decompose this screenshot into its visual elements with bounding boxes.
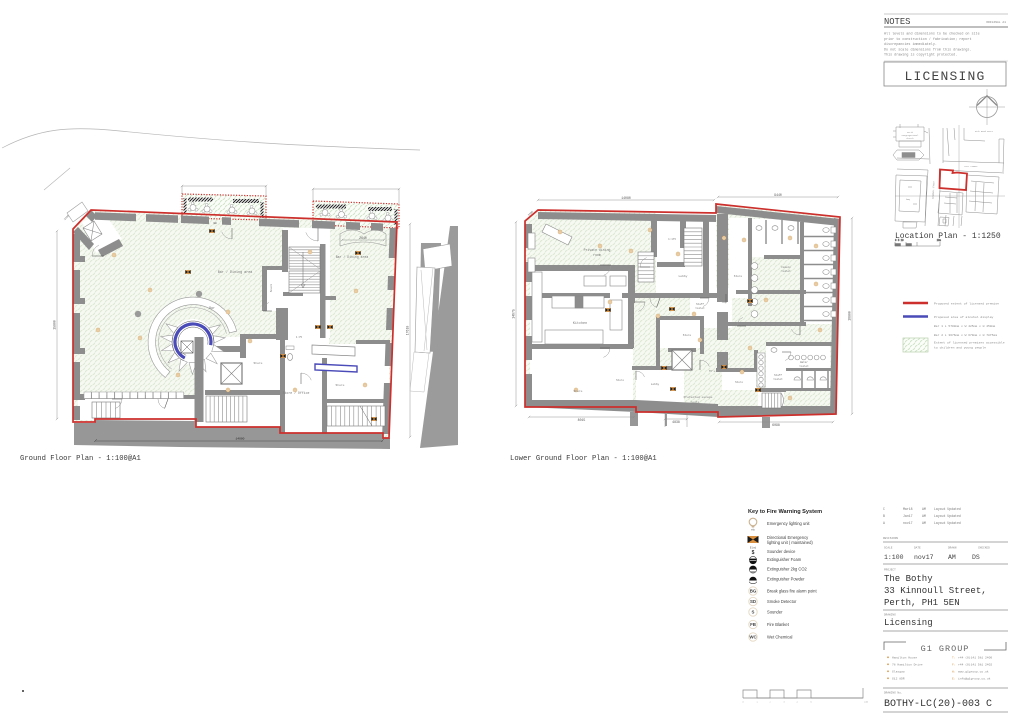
svg-text:nov17: nov17 (903, 521, 913, 525)
svg-text:20m: 20m (937, 239, 942, 242)
svg-text:E:: E: (952, 678, 956, 681)
svg-text:Emergency lighting unit: Emergency lighting unit (767, 521, 810, 526)
svg-text:SD: SD (750, 599, 756, 604)
svg-text:AM: AM (922, 521, 926, 525)
svg-text:Bar 1 L 5700mm x W 425mm x H 4: Bar 1 L 5700mm x W 425mm x H 450mm (934, 325, 995, 328)
svg-text:lighting unit ( maintained): lighting unit ( maintained) (767, 540, 813, 545)
svg-text:B: B (883, 514, 885, 518)
svg-text:Lower Ground Floor Plan - 1:10: Lower Ground Floor Plan - 1:100@A1 (510, 455, 657, 463)
svg-text:route: route (690, 401, 699, 404)
svg-text:6098: 6098 (772, 423, 780, 427)
svg-text:E (m): E (m) (750, 546, 756, 550)
svg-text:Store: Store (573, 390, 582, 393)
svg-text:4838: 4838 (672, 420, 680, 424)
svg-text:WC: WC (749, 635, 757, 640)
svg-text:nov17: nov17 (914, 554, 934, 561)
svg-text:All levels and dimensions to b: All levels and dimensions to be checked … (884, 32, 980, 37)
svg-text:9440: 9440 (774, 193, 782, 197)
svg-text:1:75: 1:75 (296, 336, 303, 339)
svg-text:Store: Store (683, 334, 692, 337)
svg-text:Layout Updated: Layout Updated (934, 514, 961, 518)
svg-text:toilet: toilet (695, 306, 705, 310)
svg-text:Jan17: Jan17 (903, 514, 913, 518)
svg-text:Female: Female (781, 265, 791, 269)
svg-text:10m: 10m (864, 701, 869, 704)
svg-text:G12 8DR: G12 8DR (892, 678, 905, 681)
svg-text:Mar18: Mar18 (903, 507, 913, 511)
svg-text:REVISIONS: REVISIONS (883, 537, 898, 540)
svg-text:Protected escape: Protected escape (684, 395, 713, 399)
svg-text:C: C (883, 507, 885, 511)
svg-text:SCALE: SCALE (884, 547, 893, 550)
svg-text:Sounder device: Sounder device (767, 549, 796, 554)
svg-text:toilet: toilet (781, 269, 791, 273)
svg-text:15800: 15800 (53, 320, 57, 330)
svg-text:Snack: Snack (269, 283, 273, 292)
svg-text:Do not scale dimensions from t: Do not scale dimensions from this drawin… (884, 47, 972, 52)
svg-text:ORIGINAL A1: ORIGINAL A1 (986, 21, 1006, 24)
svg-text:CHECKED: CHECKED (978, 547, 990, 550)
svg-text:$: $ (752, 550, 755, 556)
svg-text:Bar: Bar (209, 306, 215, 310)
svg-text:W:: W: (952, 671, 956, 674)
svg-text:AM: AM (948, 554, 956, 561)
svg-text:Fire Blanket: Fire Blanket (767, 622, 790, 627)
svg-text:LICENSING: LICENSING (904, 69, 985, 84)
svg-text:Lobby: Lobby (678, 274, 687, 278)
svg-text:NOTES: NOTES (884, 17, 910, 27)
svg-text:elu: elu (751, 528, 755, 532)
svg-text:S: S (752, 610, 755, 615)
svg-text:G1 GROUP: G1 GROUP (921, 644, 970, 654)
svg-text:+44 (0)141 581 2400: +44 (0)141 581 2400 (958, 656, 992, 660)
svg-text:Bar 2 L 3676mm x W 679mm x H 7: Bar 2 L 3676mm x W 679mm x H 7875mm (934, 334, 997, 337)
svg-text:A: A (883, 521, 885, 525)
svg-text:Store: Store (616, 379, 624, 382)
svg-text:DRAWING No.: DRAWING No. (884, 692, 902, 695)
svg-text:Fish Road Court: Fish Road Court (975, 130, 993, 133)
svg-text:discrepancies immediately.: discrepancies immediately. (884, 42, 937, 47)
svg-text:AM: AM (922, 514, 926, 518)
svg-text:Store: Store (735, 381, 743, 384)
svg-text:14080: 14080 (621, 196, 631, 200)
svg-text:FB: FB (750, 622, 756, 627)
svg-text:Extinguisher Foam: Extinguisher Foam (767, 557, 802, 562)
svg-text:Ground Floor Plan - 1:100@A1: Ground Floor Plan - 1:100@A1 (20, 455, 141, 463)
svg-text:Bar / Dining area: Bar / Dining area (336, 255, 369, 259)
svg-text:Store / Office: Store / Office (283, 391, 310, 395)
svg-text:Church: Church (906, 137, 914, 140)
svg-text:14675: 14675 (512, 309, 516, 319)
svg-text:+44 (0)141 581 2402: +44 (0)141 581 2402 (958, 663, 992, 667)
svg-text:MILL STREET: MILL STREET (964, 165, 978, 168)
svg-text:Location Plan - 1:1250: Location Plan - 1:1250 (895, 232, 1001, 241)
svg-text:Wet Chemical: Wet Chemical (767, 635, 792, 640)
svg-text:33 Kinnoull Street,: 33 Kinnoull Street, (884, 586, 987, 596)
svg-text:Staff: Staff (696, 302, 704, 306)
svg-text:toilet: toilet (773, 377, 783, 381)
svg-text:info@g1group.co.uk: info@g1group.co.uk (958, 677, 991, 681)
svg-text:DRAWN: DRAWN (948, 547, 957, 550)
svg-text:Key to Fire Warning System: Key to Fire Warning System (748, 509, 822, 515)
svg-text:DS: DS (972, 554, 980, 561)
svg-text:Private dining: Private dining (584, 248, 611, 252)
svg-text:The Bothy: The Bothy (884, 574, 933, 584)
svg-text:Lobby: Lobby (651, 382, 660, 386)
svg-text:16800: 16800 (848, 311, 852, 321)
svg-text:This drawing is copyright prot: This drawing is copyright protected. (884, 53, 957, 58)
svg-text:prior to construction / fabric: prior to construction / fabrication; rep… (884, 37, 972, 42)
svg-text:www.g1group.co.uk: www.g1group.co.uk (958, 670, 989, 674)
svg-text:Layout Updated: Layout Updated (934, 521, 961, 525)
svg-text:2640: 2640 (359, 236, 367, 240)
svg-text:Proposed extent of licensed pr: Proposed extent of licensed premise (934, 302, 999, 306)
svg-text:Store: Store (335, 384, 344, 387)
svg-text:Bar / Dining area: Bar / Dining area (218, 270, 253, 275)
svg-text:Sounder: Sounder (767, 610, 783, 615)
svg-text:Store: Store (253, 362, 262, 365)
svg-text:Water: Water (800, 361, 808, 364)
svg-text:T:: T: (952, 657, 956, 660)
svg-text:DRAWING: DRAWING (884, 614, 896, 617)
svg-text:toilet: toilet (799, 364, 809, 368)
svg-text:PROJECT: PROJECT (884, 569, 896, 572)
svg-text:Hamilton House: Hamilton House (892, 656, 917, 660)
svg-text:room: room (593, 253, 601, 257)
svg-text:Kitchen: Kitchen (573, 321, 587, 326)
svg-text:0 5 10: 0 5 10 (895, 239, 904, 242)
svg-text:17610: 17610 (406, 326, 410, 336)
svg-text:Extent of licensed premises ac: Extent of licensed premises accessible (934, 341, 1005, 345)
svg-text:Licensing: Licensing (884, 618, 933, 628)
svg-text:Glasgow: Glasgow (892, 670, 905, 674)
svg-text:Layout Updated: Layout Updated (934, 507, 961, 511)
svg-text:14000: 14000 (235, 438, 244, 441)
svg-text:Staff: Staff (774, 373, 782, 377)
svg-text:1:100: 1:100 (884, 554, 904, 561)
svg-text:Store: Store (734, 275, 743, 278)
svg-text:BG: BG (750, 589, 757, 594)
svg-text:AM: AM (922, 507, 926, 511)
svg-text:TV's: TV's (709, 369, 716, 373)
svg-text:1:175: 1:175 (668, 238, 676, 241)
svg-text:Smoke Detector: Smoke Detector (767, 599, 797, 604)
svg-text:8015: 8015 (578, 418, 586, 422)
svg-text:78 Hamilton Drive: 78 Hamilton Drive (892, 663, 923, 667)
svg-text:to children and young people: to children and young people (934, 346, 986, 350)
svg-text:Perth, PH1 5EN: Perth, PH1 5EN (884, 598, 960, 608)
svg-text:Break glass fire alarm point: Break glass fire alarm point (767, 589, 817, 594)
svg-text:BOTHY-LC(20)-003 C: BOTHY-LC(20)-003 C (884, 698, 992, 710)
svg-text:Proposed area of alcohol displ: Proposed area of alcohol display (934, 315, 994, 319)
svg-text:Extinguisher Powder: Extinguisher Powder (767, 577, 805, 582)
svg-text:DATE: DATE (914, 547, 921, 550)
svg-text:WW: WW (213, 222, 217, 225)
svg-text:F:: F: (952, 664, 956, 667)
svg-text:Extinguisher 2kg CO2: Extinguisher 2kg CO2 (767, 567, 808, 572)
